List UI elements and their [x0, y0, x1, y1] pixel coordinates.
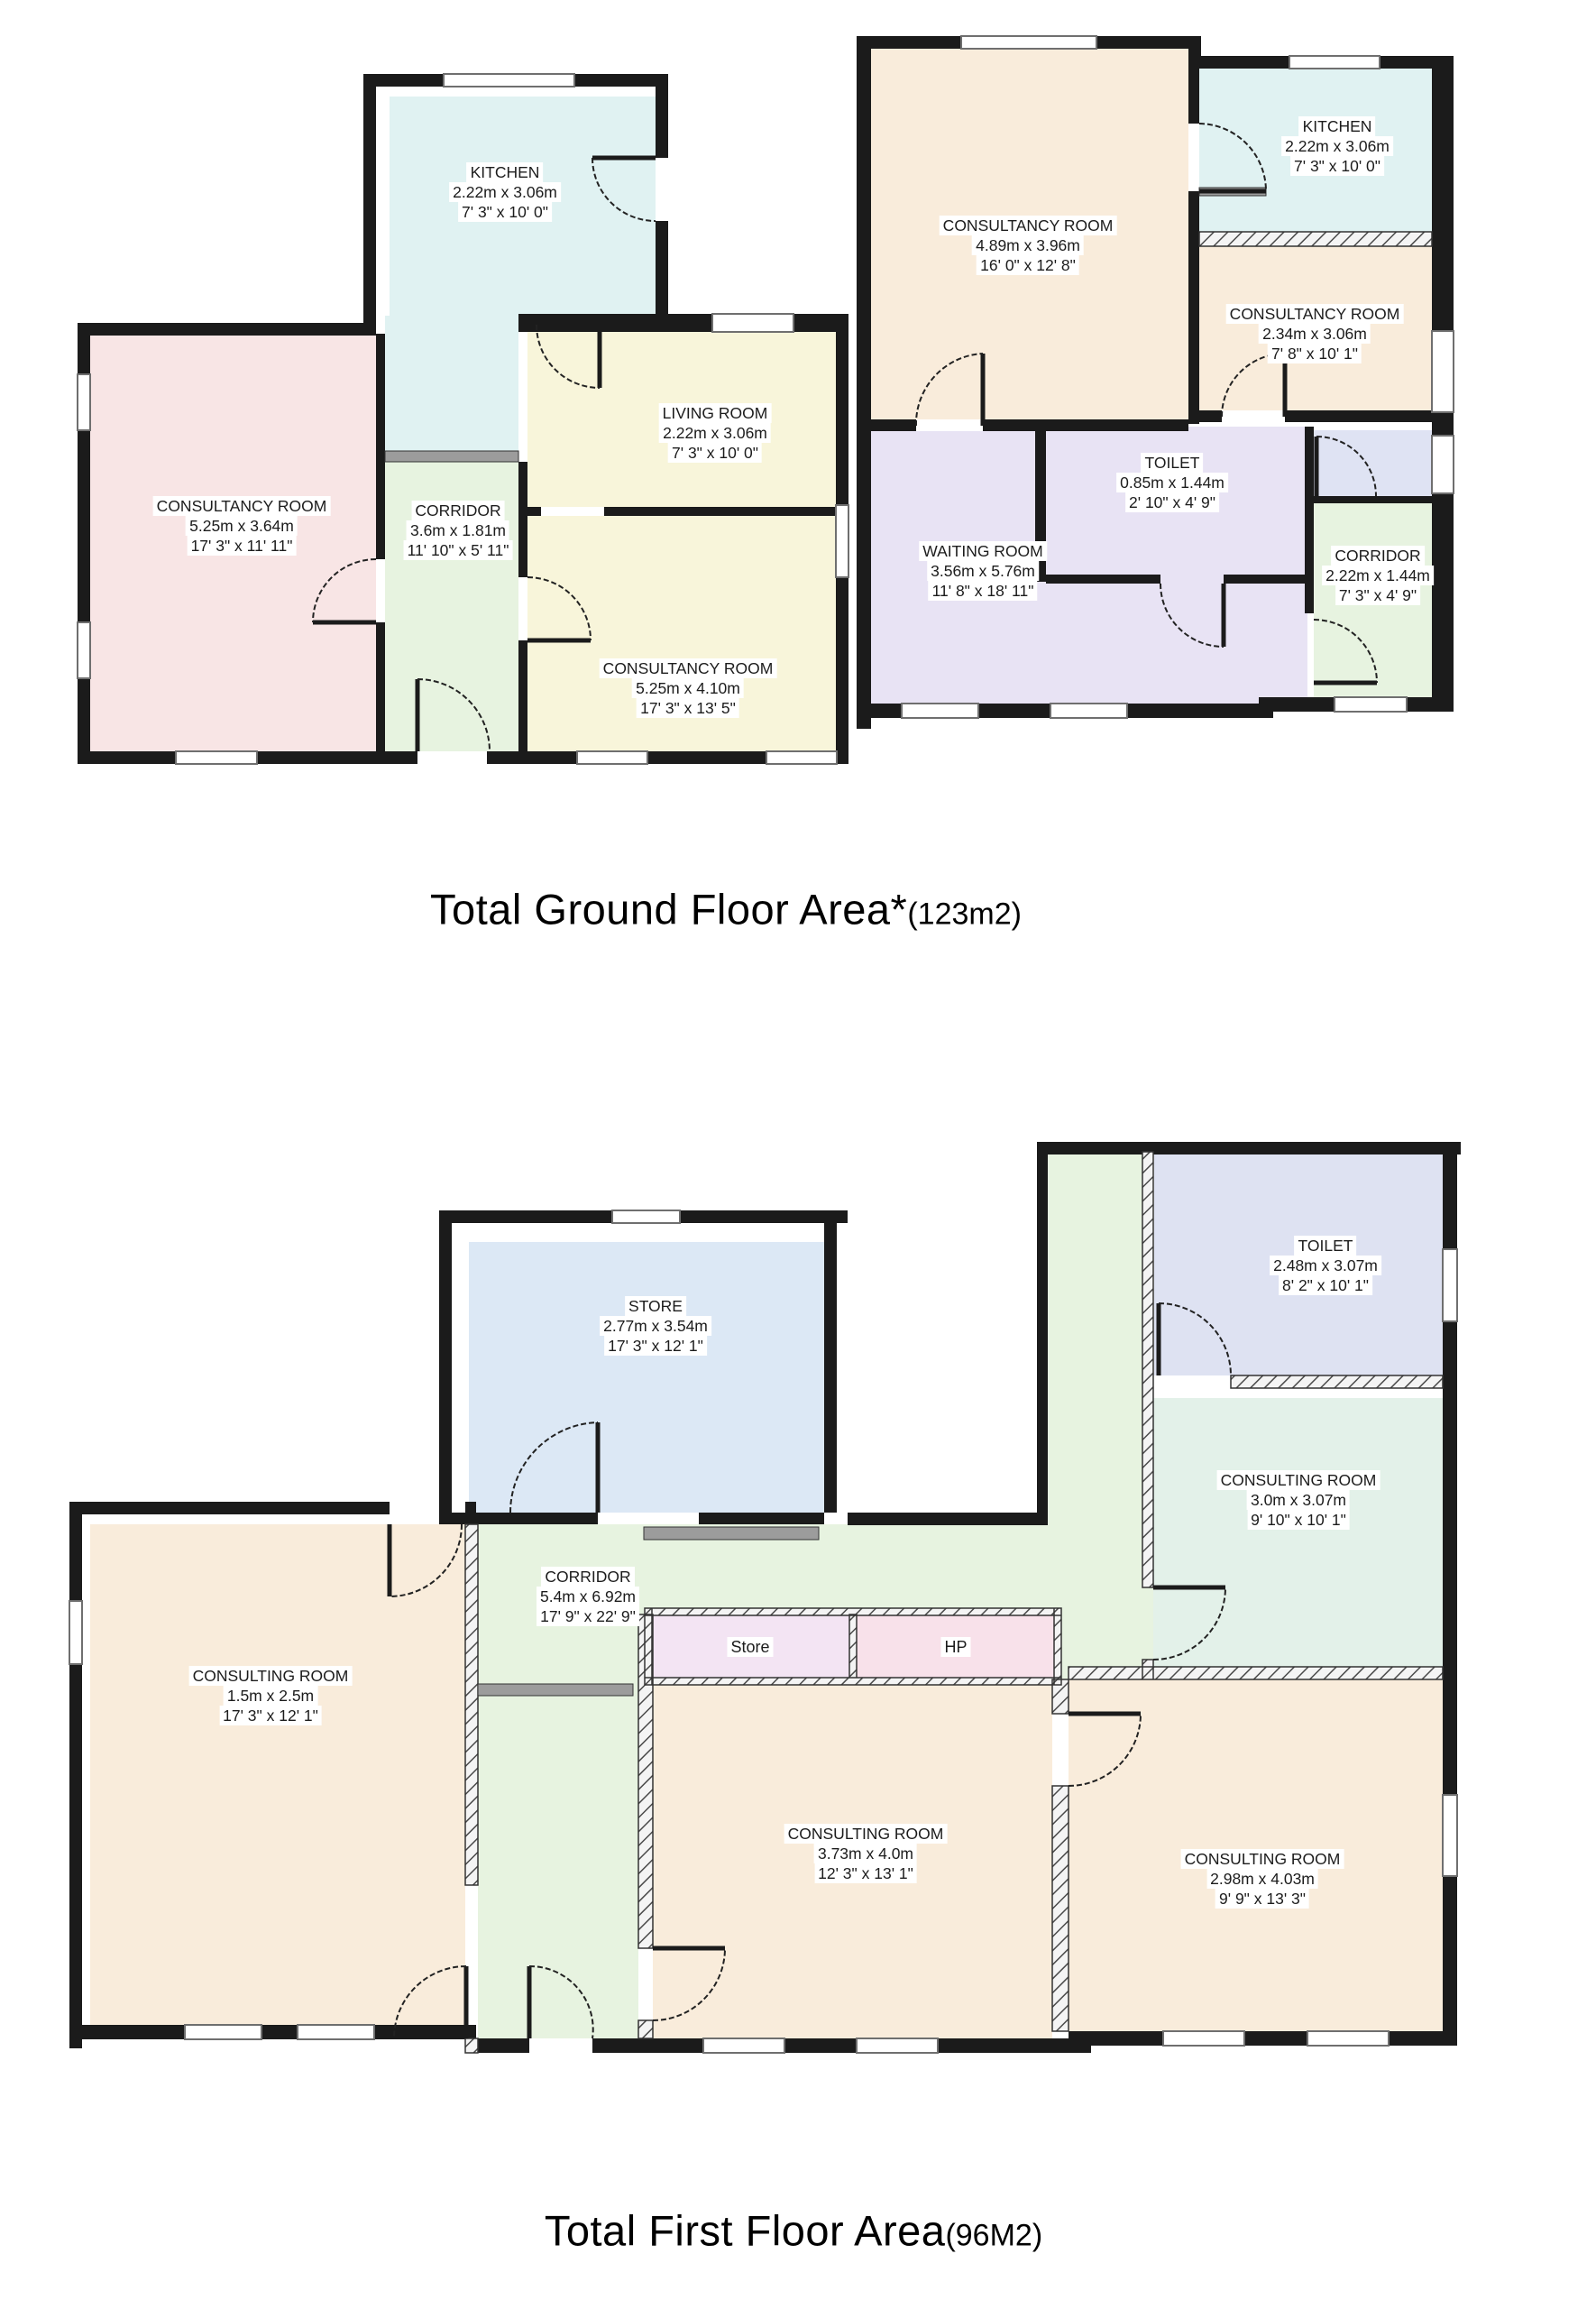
room-store	[469, 1242, 824, 1513]
room-consulting-mint	[1153, 1398, 1443, 1667]
label-toilet-1f: TOILET2.48m x 3.07m8' 2" x 10' 1"	[1270, 1236, 1381, 1295]
label-waiting: WAITING ROOM3.56m x 5.76m11' 8" x 18' 11…	[919, 541, 1047, 601]
label-store: STORE2.77m x 3.54m17' 3" x 12' 1"	[600, 1296, 711, 1356]
room-blue-lobby	[1314, 430, 1432, 496]
label-consulting-left: CONSULTING ROOM1.5m x 2.5m17' 3" x 12' 1…	[189, 1666, 353, 1725]
room-consulting-left	[90, 1524, 465, 2038]
floorplan-page: KITCHEN2.22m x 3.06m7' 3" x 10' 0" CONSU…	[0, 0, 1596, 2309]
label-consulting-right: CONSULTING ROOM2.98m x 4.03m9' 9" x 13' …	[1181, 1849, 1344, 1909]
first-floor-area-text: (96M2)	[945, 2219, 1042, 2253]
label-consultancy-bottom: CONSULTANCY ROOM5.25m x 4.10m17' 3" x 13…	[600, 658, 777, 718]
label-consulting-mint: CONSULTING ROOM3.0m x 3.07m9' 10" x 10' …	[1217, 1470, 1380, 1530]
room-corridor-1f-left	[478, 1614, 638, 2038]
label-kitchen-right: KITCHEN2.22m x 3.06m7' 3" x 10' 0"	[1281, 116, 1393, 176]
label-closet-store: Store	[727, 1637, 773, 1657]
room-corridor-1f-right	[1048, 1154, 1153, 1679]
label-consulting-mid: CONSULTING ROOM3.73m x 4.0m12' 3" x 13' …	[784, 1824, 948, 1883]
room-kitchen-left-extension	[385, 316, 518, 462]
first-floor-title: Total First Floor Area(96M2)	[545, 2206, 1042, 2256]
label-consultancy-left: CONSULTANCY ROOM5.25m x 3.64m17' 3" x 11…	[153, 496, 331, 556]
label-corridor-1f: CORRIDOR5.4m x 6.92m17' 9" x 22' 9"	[537, 1567, 639, 1626]
label-corridor-left: CORRIDOR3.6m x 1.81m11' 10" x 5' 11"	[404, 501, 513, 560]
first-floor-title-text: Total First Floor Area	[545, 2207, 946, 2255]
label-consultancy-right-small: CONSULTANCY ROOM2.34m x 3.06m7' 8" x 10'…	[1226, 304, 1404, 363]
ground-floor-title: Total Ground Floor Area*(123m2)	[430, 885, 1022, 934]
label-living: LIVING ROOM2.22m x 3.06m7' 3" x 10' 0"	[659, 403, 772, 463]
label-corridor-right: CORRIDOR2.22m x 1.44m7' 3" x 4' 9"	[1322, 546, 1434, 605]
ground-floor-title-text: Total Ground Floor Area*	[430, 886, 907, 934]
label-toilet-ground: TOILET0.85m x 1.44m2' 10" x 4' 9"	[1116, 453, 1228, 512]
label-kitchen-left: KITCHEN2.22m x 3.06m7' 3" x 10' 0"	[449, 162, 561, 222]
label-consultancy-right-large: CONSULTANCY ROOM4.89m x 3.96m16' 0" x 12…	[940, 216, 1117, 275]
ground-floor-area-text: (123m2)	[907, 897, 1022, 932]
label-closet-hp: HP	[940, 1637, 970, 1657]
ground-hatched-walls	[1199, 232, 1432, 246]
